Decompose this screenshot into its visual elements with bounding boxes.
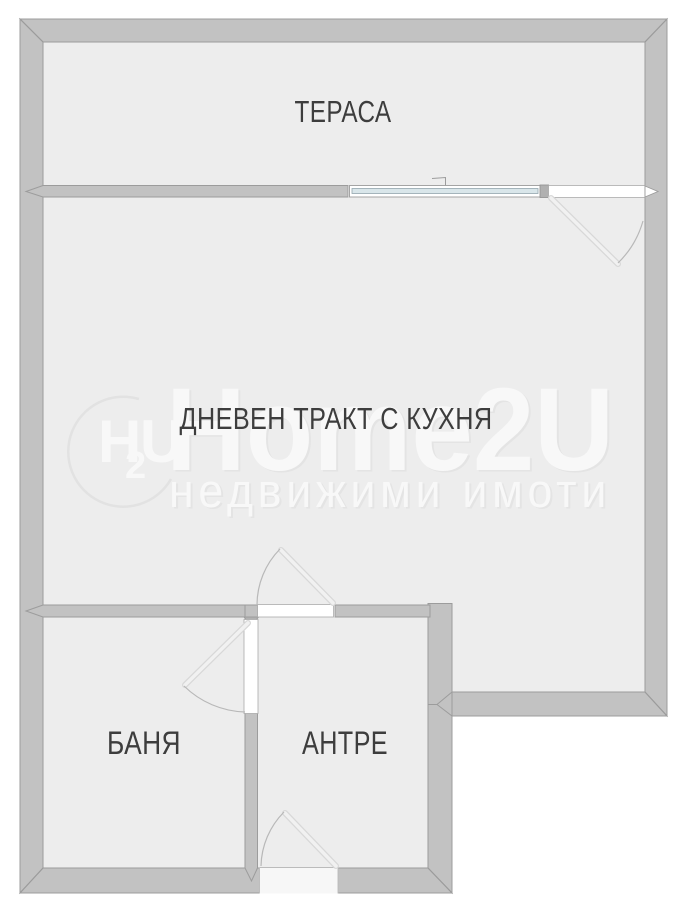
- wall-top: [20, 19, 667, 42]
- wall-lower-divider-right: [335, 605, 430, 617]
- living-label: ДНЕВЕН ТРАКТ С КУХНЯ: [180, 401, 493, 436]
- wall-terrace-divider: [26, 186, 348, 198]
- wall-hall-right: [428, 604, 452, 894]
- terrace-door-jamb: [540, 185, 549, 198]
- bath-label: БАНЯ: [107, 725, 181, 761]
- floorplan-svg: Home2U недвижими имоти Home2U недвижими …: [0, 0, 694, 911]
- wall-lower-divider-junction: [245, 605, 258, 617]
- bath-door-opening: [244, 620, 258, 714]
- terrace-window-glass: [352, 189, 538, 194]
- entry-door-opening: [260, 868, 339, 894]
- terrace-door-opening: [549, 186, 646, 198]
- hall-top-door-opening: [258, 605, 334, 618]
- wall-right: [645, 19, 667, 716]
- floorplan-page: Home2U недвижими имоти Home2U недвижими …: [0, 0, 694, 911]
- wall-bath-hall-divider: [245, 713, 258, 881]
- tagline-watermark-text: недвижими имоти: [169, 464, 611, 517]
- wall-bottom-right: [452, 692, 667, 716]
- logo-letter-u: U: [140, 408, 183, 475]
- terrace-label: ТЕРАСА: [295, 94, 392, 129]
- hall-label: АНТРЕ: [302, 725, 388, 761]
- wall-left: [20, 19, 43, 893]
- wall-lower-divider-left: [26, 605, 245, 617]
- wall-bottom: [20, 868, 452, 893]
